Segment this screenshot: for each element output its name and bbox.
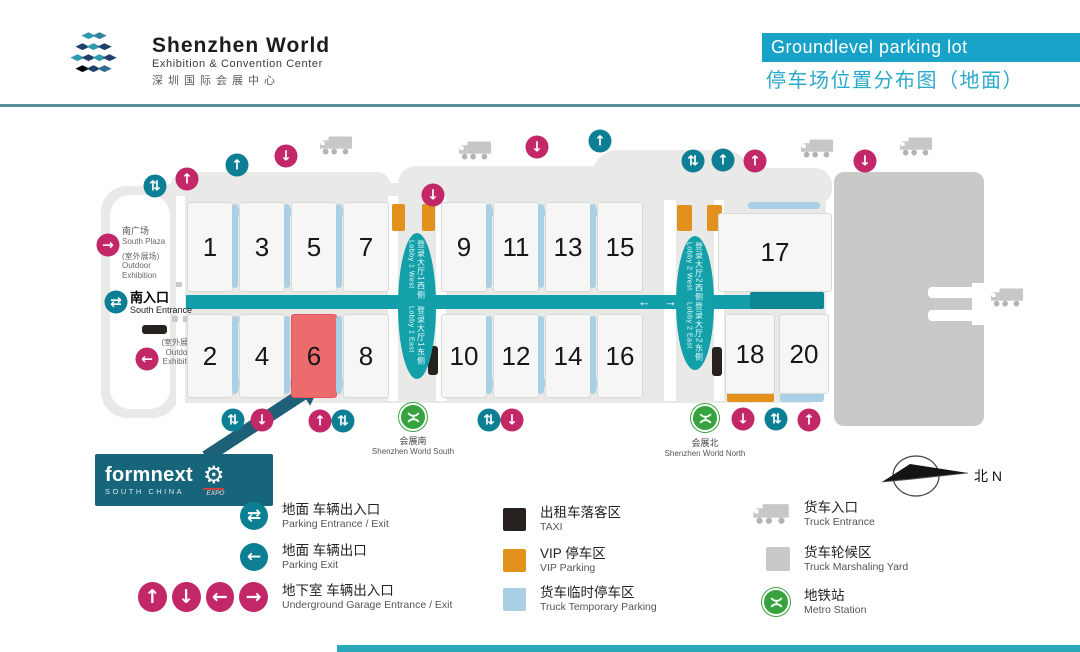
legend-parking-exit: ← 地面 车辆出口 Parking Exit	[138, 543, 367, 572]
legend-vip-parking: VIP 停车区 VIP Parking	[502, 546, 606, 575]
hall-12: 12	[493, 314, 539, 398]
lobby-2-west-en: Lobby 2 West	[686, 242, 693, 304]
hall-separator	[336, 204, 342, 288]
hall-separator	[284, 316, 290, 394]
underground-garage-exit-icon: ↓	[526, 136, 549, 159]
legend-truck-temp-parking: 货车临时停车区 Truck Temporary Parking	[502, 585, 657, 614]
hall-5: 5	[291, 202, 337, 292]
legend-taxi: 出租车落客区 TAXI	[502, 505, 621, 534]
vip-parking-bar	[392, 204, 405, 231]
legend-en: Parking Exit	[282, 559, 367, 572]
lobby-2-east-cn: 登录大厅2东侧	[694, 302, 705, 364]
lobby-2: Lobby 2 West 登录大厅2西侧 Lobby 2 East 登录大厅2东…	[676, 236, 714, 370]
lobby-1-east-cn: 登录大厅1东侧	[416, 306, 427, 372]
hall-6: 6	[291, 314, 337, 398]
hall-separator	[284, 204, 290, 288]
underground-garage-entrance-icon: ↑	[744, 150, 767, 173]
metro-south-en: Shenzhen World South	[363, 447, 463, 456]
legend-en: Metro Station	[804, 604, 866, 617]
hall-20: 20	[779, 314, 829, 394]
hall-4: 4	[239, 314, 285, 398]
legend-parking-entrance-exit: ⇄ 地面 车辆出入口 Parking Entrance / Exit	[138, 502, 389, 531]
parking-entrance-exit-icon: ⇅	[144, 175, 167, 198]
truck-entrance-icon	[899, 136, 933, 163]
south-entrance-cn: 南入口	[130, 291, 210, 305]
hall-16: 16	[597, 314, 643, 398]
truck-entrance-icon	[319, 135, 353, 162]
parking-entrance-icon: ↑	[712, 149, 735, 172]
legend-cn: 地面 车辆出口	[282, 543, 367, 559]
hall-8: 8	[343, 314, 389, 398]
underground-garage-entrance-icon: ↑	[798, 409, 821, 432]
truck-temp-swatch-icon	[503, 588, 526, 611]
lobby-1-east-en: Lobby 1 East	[408, 306, 415, 372]
parking-entrance-exit-icon: ⇅	[332, 410, 355, 433]
hall-2: 2	[187, 314, 233, 398]
legend-cn: 货车临时停车区	[540, 585, 657, 601]
lobby-1: Lobby 1 West 登录大厅1西侧 Lobby 1 East 登录大厅1东…	[398, 233, 436, 379]
lobby-2-west: Lobby 2 West 登录大厅2西侧	[676, 242, 714, 304]
south-entrance-label: 南入口 South Entrance	[130, 291, 210, 315]
south-plaza-cn: 南广场	[122, 226, 197, 237]
lobby-1-west-en: Lobby 1 West	[408, 240, 415, 306]
legend-cn: 地铁站	[804, 588, 866, 604]
underground-garage-left-icon: ←	[206, 582, 235, 612]
hall-11: 11	[493, 202, 539, 292]
central-corridor-end	[750, 292, 824, 309]
parking-entrance-exit-icon: ⇅	[765, 408, 788, 431]
vip-swatch-icon	[503, 549, 526, 572]
legend-cn: VIP 停车区	[540, 546, 606, 562]
hall-separator	[336, 316, 342, 394]
vip-parking-bar	[677, 205, 692, 231]
corridor-left-arrow-icon: ←	[638, 295, 651, 309]
outdoor-exhibition-en2: Exhibition	[122, 271, 197, 281]
hall-17: 17	[718, 213, 832, 292]
formnext-gear-block: ⚙ EXPO	[203, 463, 225, 497]
parking-exit-icon: ←	[240, 543, 268, 571]
underground-garage-entrance-icon: ↑	[176, 168, 199, 191]
underground-garage-exit-icon: ↓	[422, 184, 445, 207]
compass-label: 北 N	[974, 466, 1002, 486]
parking-map-page: ◆◆ ◆◆◆ ◆◆◆◆ ◆◆◆ Shenzhen World Exhibitio…	[0, 0, 1080, 652]
lobby-2-west-cn: 登录大厅2西侧	[694, 242, 705, 304]
lobby-1-west: Lobby 1 West 登录大厅1西侧	[398, 240, 436, 306]
formnext-logo: formnext SOUTH CHINA ⚙ EXPO	[95, 454, 273, 506]
hall-7: 7	[343, 202, 389, 292]
legend-en: Parking Entrance / Exit	[282, 518, 389, 531]
legend-cn: 地面 车辆出入口	[282, 502, 389, 518]
underground-garage-exit-icon: ↓	[275, 145, 298, 168]
legend-en: TAXI	[540, 521, 621, 534]
legend-cn: 货车轮候区	[804, 545, 908, 561]
hall-13: 13	[545, 202, 591, 292]
parking-entrance-exit-icon: ⇅	[478, 409, 501, 432]
formnext-expo: EXPO	[203, 488, 225, 497]
truck-temp-parking-strip	[748, 202, 820, 209]
vip-parking-bar	[422, 204, 435, 231]
underground-garage-exit-icon: ←	[136, 348, 159, 371]
gear-icon: ⚙	[203, 463, 225, 487]
truck-icon	[752, 502, 790, 526]
taxi-swatch-icon	[503, 508, 526, 531]
legend-metro-station: 地铁站 Metro Station	[750, 588, 866, 617]
truck-entrance-icon	[800, 138, 834, 165]
parking-entrance-exit-icon: ⇅	[222, 409, 245, 432]
metro-north-label: 会展北 Shenzhen World North	[655, 436, 755, 458]
parking-entrance-exit-icon: ⇅	[682, 150, 705, 173]
underground-garage-entrance-icon: ↑	[309, 410, 332, 433]
hall-separator	[590, 204, 596, 288]
hall-18: 18	[725, 314, 775, 394]
legend-cn: 地下室 车辆出入口	[282, 583, 452, 599]
legend-en: Truck Marshaling Yard	[804, 561, 908, 574]
hall-separator	[232, 204, 238, 288]
marshaling-swatch-icon	[766, 547, 790, 571]
hall-separator	[232, 316, 238, 394]
hall-separator	[590, 316, 596, 394]
truck-entrance-icon	[458, 140, 492, 167]
underground-garage-exit-icon: ↓	[732, 408, 755, 431]
parking-entrance-exit-icon: ⇄	[240, 502, 268, 530]
hall-10: 10	[441, 314, 487, 398]
hall-9: 9	[441, 202, 487, 292]
underground-garage-down-icon: ↓	[172, 582, 201, 612]
metro-north-en: Shenzhen World North	[655, 449, 755, 458]
legend-en: VIP Parking	[540, 562, 606, 575]
hall-14: 14	[545, 314, 591, 398]
outdoor-exhibition-en1: Outdoor	[122, 261, 197, 271]
underground-garage-exit-icon: ↓	[854, 150, 877, 173]
legend-cn: 出租车落客区	[540, 505, 621, 521]
metro-station-icon	[691, 404, 719, 432]
metro-station-icon	[399, 403, 427, 431]
parking-entrance-icon: ↑	[226, 154, 249, 177]
underground-garage-exit-icon: ↓	[501, 409, 524, 432]
metro-station-icon	[762, 588, 790, 616]
legend-truck-marshaling: 货车轮候区 Truck Marshaling Yard	[750, 545, 908, 574]
parking-entrance-exit-icon: ⇄	[105, 291, 128, 314]
legend-cn: 货车入口	[804, 500, 875, 516]
metro-south-label: 会展南 Shenzhen World South	[363, 434, 463, 456]
legend-underground-garage: ↑ ↓ ← → 地下室 车辆出入口 Underground Garage Ent…	[138, 582, 452, 612]
lobby-1-west-cn: 登录大厅1西侧	[416, 240, 427, 306]
underground-garage-right-icon: →	[239, 582, 268, 612]
vip-parking-bar	[727, 393, 774, 402]
lobby-1-east: Lobby 1 East 登录大厅1东侧	[398, 306, 436, 372]
parking-entrance-icon: ↑	[589, 130, 612, 153]
lobby-2-east-en: Lobby 2 East	[686, 302, 693, 364]
truck-temp-parking-strip	[780, 393, 824, 402]
legend-en: Truck Temporary Parking	[540, 601, 657, 614]
underground-garage-up-icon: ↑	[138, 582, 167, 612]
underground-garage-entrance-icon: →	[97, 234, 120, 257]
hall-separator	[538, 316, 544, 394]
hall-3: 3	[239, 202, 285, 292]
lobby-2-east: Lobby 2 East 登录大厅2东侧	[676, 302, 714, 364]
formnext-name: formnext	[105, 465, 193, 485]
truck-marshaling-yard	[834, 172, 984, 426]
south-plaza-en: South Plaza	[122, 237, 197, 247]
hall-separator	[486, 316, 492, 394]
hall-separator	[538, 204, 544, 288]
hall-separator	[486, 204, 492, 288]
legend-en: Truck Entrance	[804, 516, 875, 529]
taxi-dropoff-bar	[142, 325, 167, 334]
south-plaza-label: 南广场 South Plaza (室外展场) Outdoor Exhibitio…	[122, 226, 197, 281]
hall-15: 15	[597, 202, 643, 292]
underground-garage-exit-icon: ↓	[251, 409, 274, 432]
compass-icon	[880, 452, 980, 498]
formnext-text-block: formnext SOUTH CHINA	[105, 465, 193, 496]
bottom-accent-bar	[337, 645, 1080, 652]
legend-en: Underground Garage Entrance / Exit	[282, 599, 452, 612]
truck-entrance-icon	[990, 287, 1024, 314]
metro-north-cn: 会展北	[655, 436, 755, 449]
hall-1: 1	[187, 202, 233, 292]
metro-south-cn: 会展南	[363, 434, 463, 447]
legend-truck-entrance: 货车入口 Truck Entrance	[750, 500, 875, 529]
formnext-region: SOUTH CHINA	[105, 487, 193, 496]
outdoor-exhibition-cn: (室外展场)	[122, 252, 197, 262]
